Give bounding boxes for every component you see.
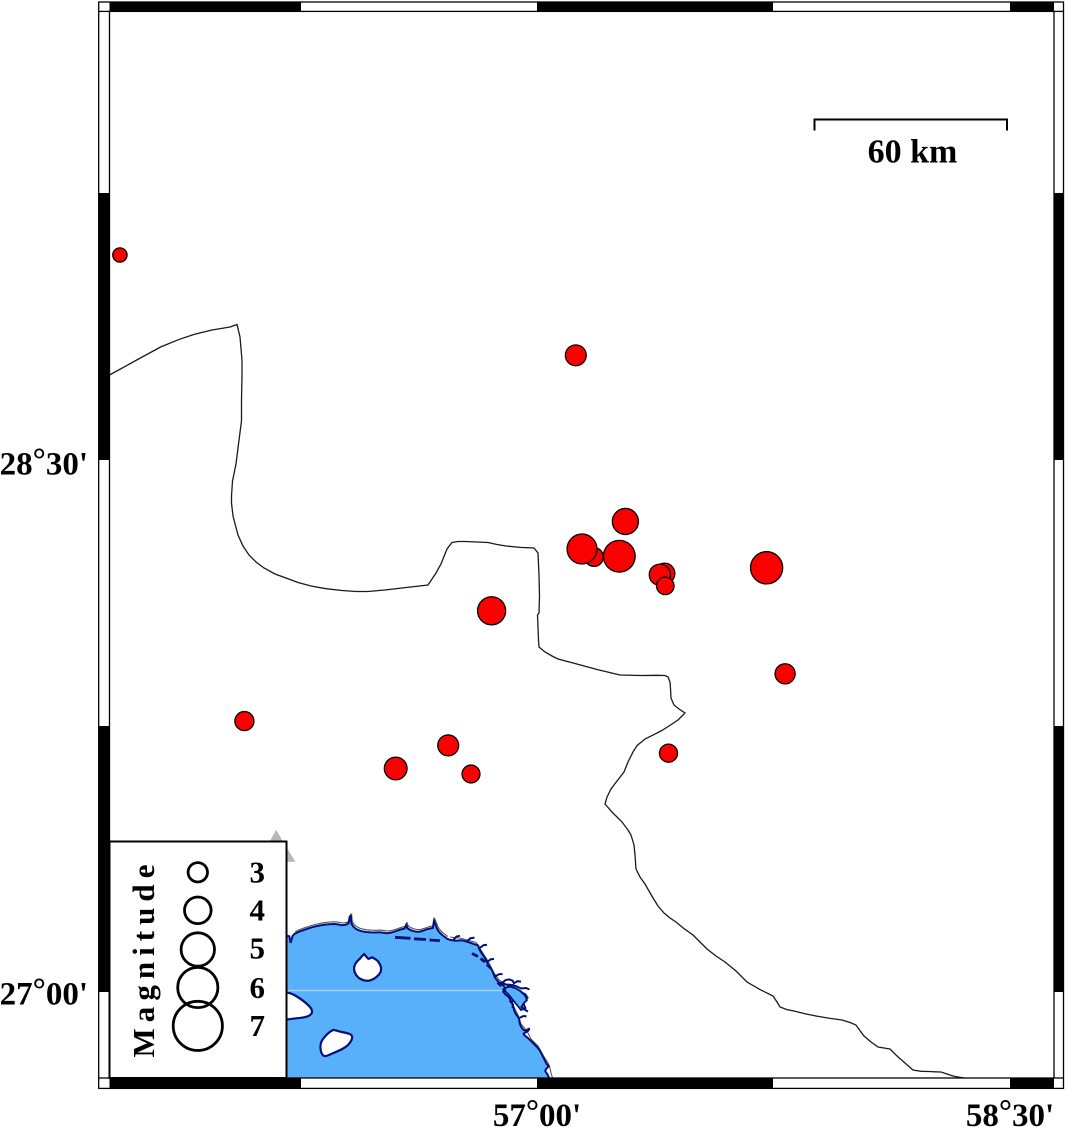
- svg-text:3: 3: [250, 854, 266, 889]
- svg-text:5: 5: [250, 931, 266, 966]
- svg-text:6: 6: [250, 970, 266, 1005]
- svg-text:4: 4: [250, 893, 266, 928]
- svg-text:7: 7: [250, 1008, 266, 1043]
- svg-text:27°00': 27°00': [0, 973, 88, 1013]
- svg-text:58°30': 58°30': [966, 1094, 1054, 1127]
- svg-text:28°30': 28°30': [0, 443, 88, 483]
- svg-text:60 km: 60 km: [868, 134, 958, 171]
- svg-text:57°00': 57°00': [493, 1094, 581, 1127]
